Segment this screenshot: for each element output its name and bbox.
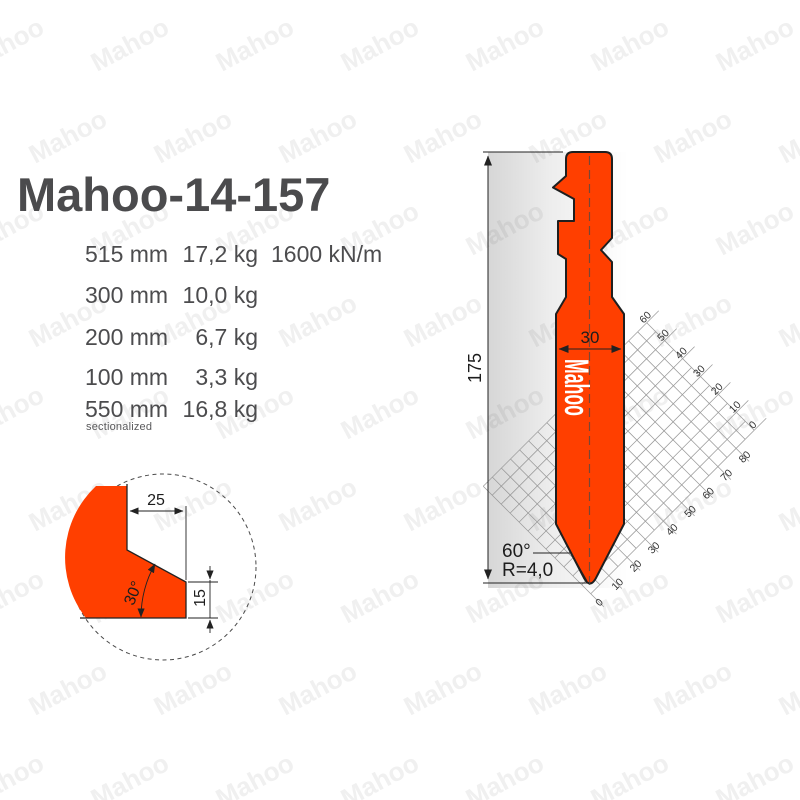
width-dim-label: 30: [581, 328, 600, 347]
watermark-text: Mahoo: [274, 471, 362, 537]
watermark-text: Mahoo: [24, 655, 112, 721]
watermark-text: Mahoo: [0, 563, 49, 629]
watermark-text: Mahoo: [336, 11, 424, 77]
grid-axis-label: 20: [709, 381, 726, 398]
watermark-text: Mahoo: [711, 195, 799, 261]
watermark-text: Mahoo: [274, 103, 362, 169]
watermark-text: Mahoo: [524, 655, 612, 721]
watermark-text: Mahoo: [0, 11, 49, 77]
spec-weight: 6,7 kg: [140, 324, 258, 351]
tip-angle-label: 60°: [502, 541, 531, 562]
watermark-text: Mahoo: [0, 747, 49, 800]
height-dim-label: 175: [465, 353, 485, 383]
watermark-text: Mahoo: [211, 11, 299, 77]
spec-row: 515 mm17,2 kg1600 kN/m: [0, 241, 420, 271]
watermark-text: Mahoo: [586, 747, 674, 800]
watermark-text: Mahoo: [399, 655, 487, 721]
watermark-text: Mahoo: [149, 103, 237, 169]
detail-height-label: 15: [192, 589, 209, 607]
watermark-text: Mahoo: [274, 655, 362, 721]
watermark-text: Mahoo: [86, 747, 174, 800]
tip-radius-label: R=4,0: [502, 560, 553, 581]
watermark-text: Mahoo: [711, 563, 799, 629]
spec-weight: 17,2 kg: [140, 241, 258, 268]
page-title: Mahoo-14-157: [17, 167, 330, 222]
watermark-text: Mahoo: [711, 747, 799, 800]
grid-axis-label: 40: [673, 345, 690, 362]
detail-width-label: 25: [147, 492, 165, 509]
watermark-text: Mahoo: [149, 655, 237, 721]
watermark-text: Mahoo: [399, 471, 487, 537]
watermark-text: Mahoo: [649, 655, 737, 721]
watermark-text: Mahoo: [211, 747, 299, 800]
spec-row: 550 mm16,8 kg: [0, 396, 420, 426]
spec-note: sectionalized: [86, 421, 152, 433]
watermark-text: Mahoo: [336, 747, 424, 800]
watermark-text: Mahoo: [461, 747, 549, 800]
spec-row: 200 mm6,7 kg: [0, 324, 420, 354]
watermark-text: Mahoo: [649, 103, 737, 169]
watermark-text: Mahoo: [774, 471, 800, 537]
watermark-text: Mahoo: [774, 655, 800, 721]
watermark-text: Mahoo: [211, 563, 299, 629]
watermark-text: Mahoo: [336, 563, 424, 629]
spec-weight: 16,8 kg: [140, 396, 258, 423]
product-sheet: MahooMahooMahooMahooMahooMahooMahooMahoo…: [0, 0, 800, 800]
grid-axis-label: 60: [637, 309, 654, 326]
watermark-text: Mahoo: [86, 11, 174, 77]
spec-force: 1600 kN/m: [271, 241, 421, 268]
watermark-text: Mahoo: [399, 103, 487, 169]
punch-body-logo: Mahoo: [557, 359, 596, 416]
spec-weight: 10,0 kg: [140, 282, 258, 309]
watermark-text: Mahoo: [774, 103, 800, 169]
spec-weight: 3,3 kg: [140, 364, 258, 391]
spec-row: 300 mm10,0 kg: [0, 282, 420, 312]
watermark-text: Mahoo: [711, 11, 799, 77]
watermark-text: Mahoo: [586, 11, 674, 77]
spec-row: 100 mm3,3 kg: [0, 364, 420, 394]
watermark-text: Mahoo: [24, 103, 112, 169]
grid-axis-label: 30: [691, 363, 708, 380]
watermark-text: Mahoo: [461, 11, 549, 77]
watermark-text: Mahoo: [774, 287, 800, 353]
